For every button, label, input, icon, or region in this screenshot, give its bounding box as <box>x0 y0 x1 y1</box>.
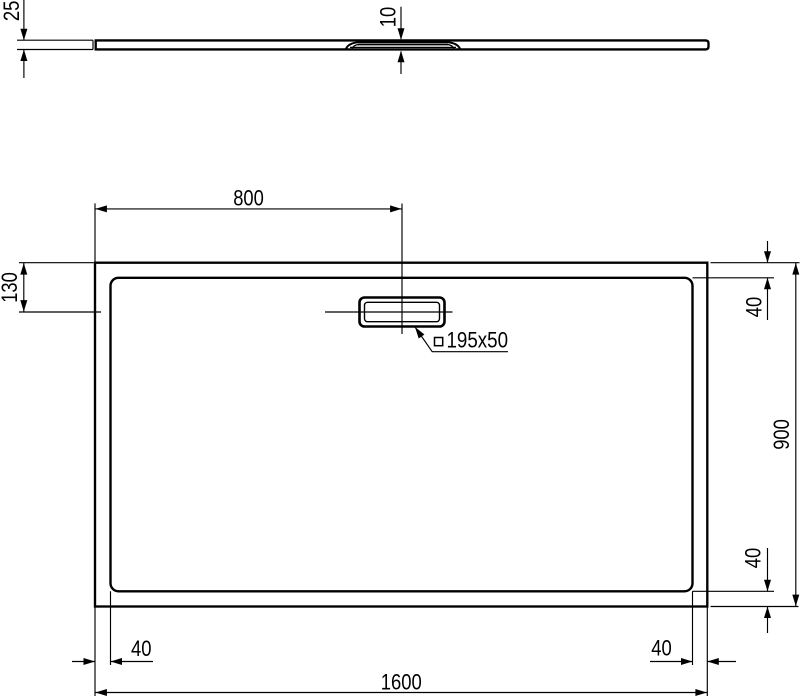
svg-text:25: 25 <box>0 1 24 22</box>
svg-text:40: 40 <box>651 636 672 661</box>
svg-text:1600: 1600 <box>381 670 422 695</box>
svg-text:900: 900 <box>769 419 794 450</box>
svg-text:40: 40 <box>741 548 766 569</box>
svg-text:40: 40 <box>131 636 152 661</box>
svg-text:195x50: 195x50 <box>447 328 509 353</box>
svg-text:10: 10 <box>376 7 401 28</box>
svg-text:130: 130 <box>0 272 22 303</box>
svg-text:800: 800 <box>233 185 264 210</box>
svg-text:40: 40 <box>742 297 767 318</box>
